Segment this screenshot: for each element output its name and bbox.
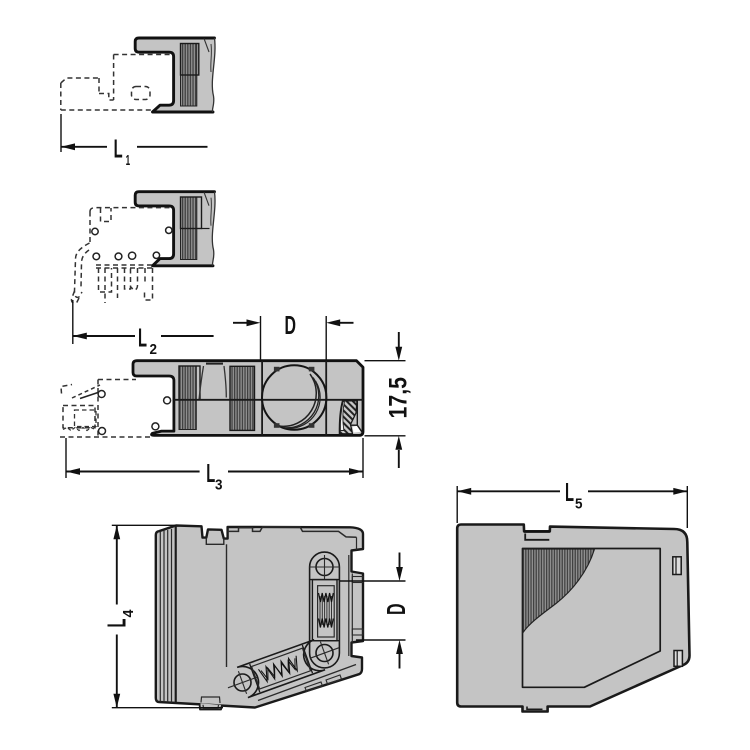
- svg-text:D: D: [285, 310, 297, 340]
- svg-text:1: 1: [126, 153, 131, 169]
- svg-text:D: D: [381, 604, 411, 616]
- svg-text:L: L: [206, 458, 215, 488]
- svg-text:3: 3: [215, 478, 223, 494]
- svg-text:L: L: [565, 477, 574, 507]
- svg-text:5: 5: [575, 496, 583, 512]
- svg-text:4: 4: [121, 610, 137, 618]
- svg-text:17,5: 17,5: [384, 377, 412, 419]
- svg-text:L: L: [114, 134, 123, 164]
- svg-text:2: 2: [150, 342, 158, 358]
- svg-text:L: L: [102, 618, 132, 627]
- svg-text:L: L: [138, 323, 147, 353]
